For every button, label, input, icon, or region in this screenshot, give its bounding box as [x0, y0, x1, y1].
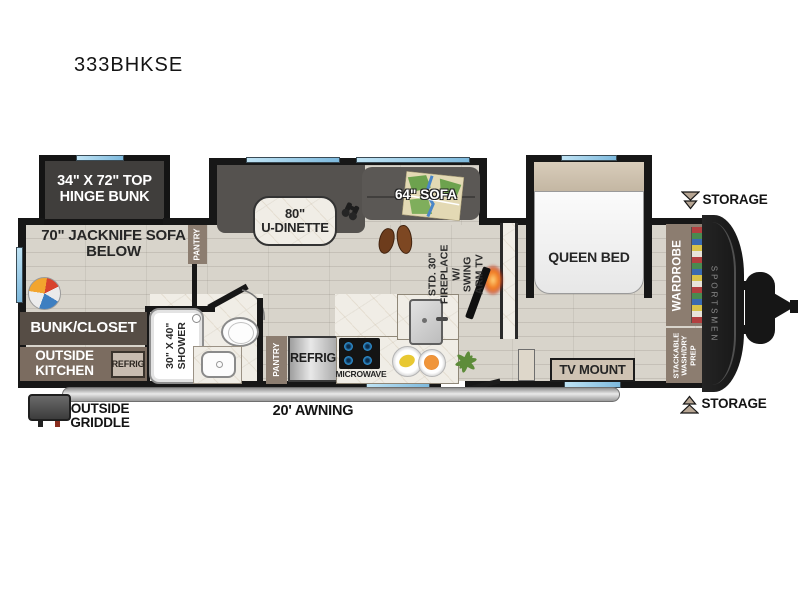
stove [339, 338, 380, 369]
front-pantry-label-wrap: PANTRY [188, 225, 207, 264]
plate-icon [418, 349, 446, 377]
griddle-label: OUTSIDE GRIDDLE [66, 401, 134, 431]
microwave-label: MICROWAVE [334, 368, 388, 381]
window [561, 155, 617, 161]
burner-icon [363, 356, 372, 365]
bunk-label: 34" X 72" TOP HINGE BUNK [45, 161, 164, 219]
griddle-knob [38, 421, 43, 427]
beach-ball-icon [28, 277, 61, 310]
brand-label: SPORTSMEN [710, 265, 719, 343]
brand-wrap: SPORTSMEN [702, 230, 726, 378]
outside-griddle-icon [28, 394, 71, 421]
awning-tube [62, 387, 620, 402]
stackable-label: STACKABLE WASH/DRY PREP [672, 333, 697, 379]
wall [163, 218, 217, 225]
fireplace-label-wrap: STD. 30" FIREPLACE W/ SWING ARM TV [430, 224, 484, 324]
shower-label: 30" X 40" SHOWER [165, 322, 189, 369]
model-title: 333BHKSE [74, 54, 183, 77]
food-icon [424, 355, 439, 370]
sink-drain-icon [216, 361, 223, 368]
window [16, 247, 23, 303]
awning-label: 20' AWNING [248, 404, 378, 420]
toilet-seat [228, 322, 254, 344]
bunk-closet-label: BUNK/CLOSET [20, 312, 147, 345]
wall [257, 298, 263, 381]
storage-arrow-up-icon [680, 395, 699, 414]
wardrobe-label: WARDROBE [672, 239, 685, 311]
outside-kitchen-refrig-label: REFRIG [111, 351, 145, 378]
wall [526, 155, 534, 298]
hitch-coupler-icon [772, 292, 792, 320]
refrigerator-label: REFRIG [288, 336, 338, 382]
sofa-label: 64" SOFA [390, 187, 462, 205]
outside-kitchen-label: OUTSIDE KITCHEN [22, 347, 107, 381]
storage-top-label: STORAGE [703, 192, 767, 209]
hitch-coupler-tip [790, 300, 798, 313]
bedroom-cabinet [518, 349, 535, 381]
food-icon [397, 353, 416, 370]
queen-bed [534, 191, 644, 294]
storage-arrow-down-icon [681, 191, 700, 210]
burner-icon [363, 342, 372, 351]
wall [209, 158, 217, 225]
wardrobe-label-wrap: WARDROBE [664, 224, 692, 326]
kitchen-pantry-label-wrap: PANTRY [266, 336, 287, 384]
burner-icon [344, 356, 353, 365]
wall [192, 264, 197, 309]
wall [479, 158, 487, 225]
sink-drain-icon [422, 318, 427, 323]
tv-mount-label: TV MOUNT [550, 358, 635, 382]
wall [644, 155, 652, 298]
plant-icon [452, 348, 480, 376]
jacknife-sofa-label: 70" JACKNIFE SOFA BELOW [36, 227, 191, 261]
stackable-label-wrap: STACKABLE WASH/DRY PREP [666, 328, 704, 383]
queen-bed-label: QUEEN BED [534, 248, 644, 266]
window [246, 157, 340, 163]
fireplace-label: STD. 30" FIREPLACE W/ SWING ARM TV [428, 244, 487, 304]
front-pantry-label: PANTRY [193, 228, 202, 260]
floorplan-canvas: 333BHKSE 80" U-DINETTE 64" SOFA [0, 0, 800, 600]
burner-icon [344, 342, 353, 351]
window [356, 157, 470, 163]
storage-bottom-label: STORAGE [702, 396, 766, 413]
dinette-label: 80" U-DINETTE [253, 197, 337, 245]
kitchen-pantry-label: PANTRY [272, 343, 282, 377]
shower-head-icon [192, 314, 201, 323]
griddle-knob [55, 421, 60, 427]
bed-headboard [534, 162, 644, 193]
propane-cover [745, 272, 775, 344]
wall [18, 218, 44, 225]
